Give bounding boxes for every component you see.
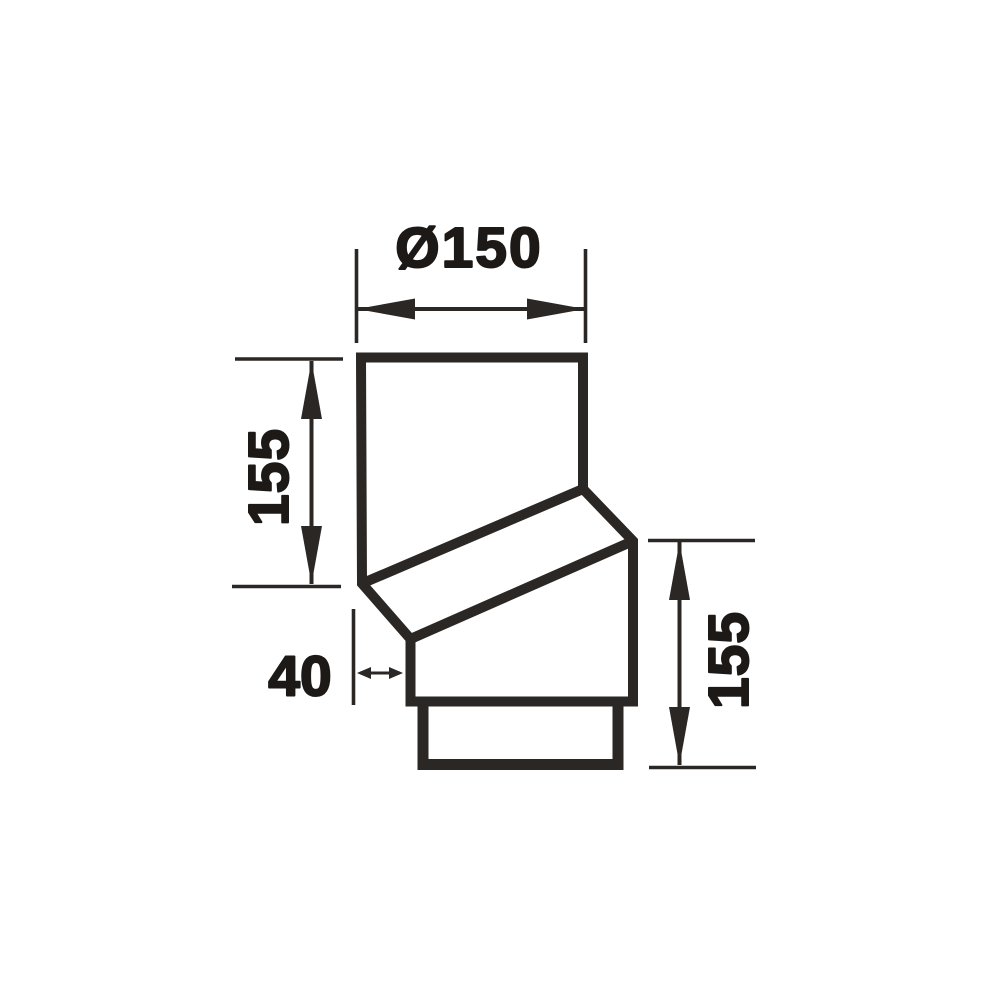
svg-text:155: 155 <box>697 611 761 709</box>
svg-text:Ø150: Ø150 <box>395 216 542 280</box>
svg-text:155: 155 <box>237 428 301 526</box>
svg-text:40: 40 <box>268 645 331 709</box>
